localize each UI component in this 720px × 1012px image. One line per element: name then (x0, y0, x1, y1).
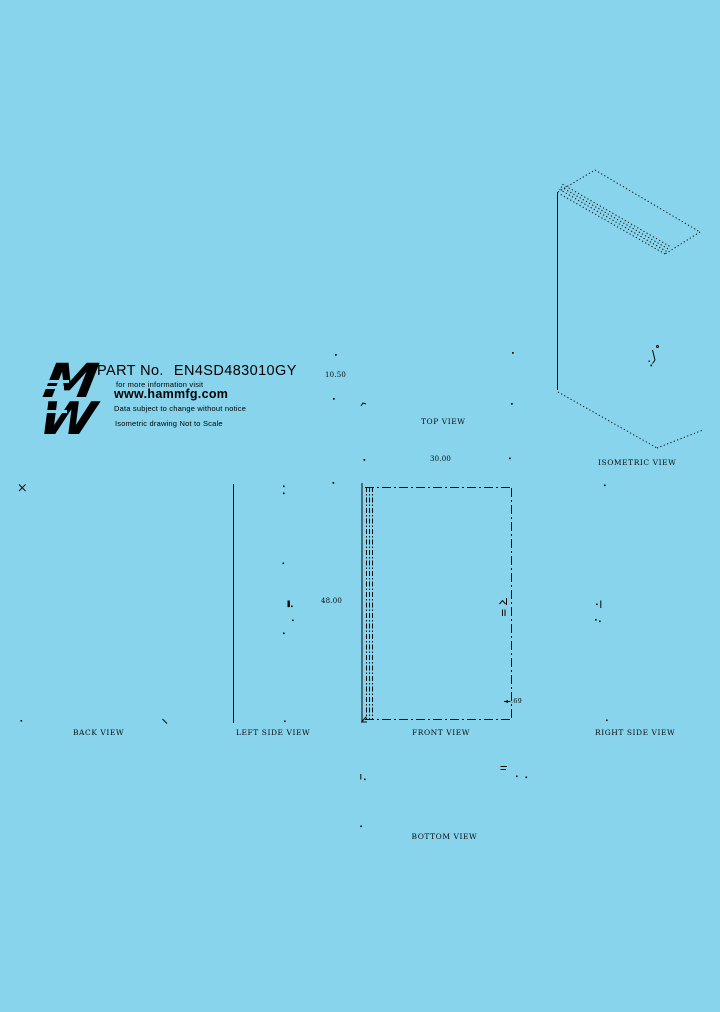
view-label-back: BACK VIEW (73, 729, 124, 737)
view-label-front: FRONT VIEW (412, 729, 470, 737)
view-label-top: TOP VIEW (421, 418, 466, 426)
dim-front-height: 48.00 (321, 598, 342, 605)
view-label-left-side: LEFT SIDE VIEW (236, 729, 310, 737)
scale-note-text: Isometric drawing Not to Scale (115, 419, 223, 428)
dim-front-door-offset: .69 (511, 698, 522, 705)
isometric-handle-mark (649, 346, 659, 367)
dim-top-depth: 10.50 (325, 372, 346, 379)
logo-stripe (40, 386, 64, 389)
website-link[interactable]: www.hammfg.com (114, 387, 228, 401)
hammond-logo-w: W (36, 396, 100, 441)
right-side-view-marks (595, 485, 608, 722)
logo-stripe (38, 410, 67, 413)
logo-stripe (42, 380, 69, 383)
front-view-outline (361, 483, 512, 722)
hammond-logo-icon: M W (36, 354, 100, 440)
disclaimer-text: Data subject to change without notice (114, 404, 246, 413)
view-label-right-side: RIGHT SIDE VIEW (595, 729, 675, 737)
bottom-view-marks (360, 767, 527, 828)
top-view-corner-tick (361, 403, 366, 406)
drawing-linework (0, 0, 720, 1012)
dim-top-width: 30.00 (430, 456, 451, 463)
part-number-label: PART No. (97, 363, 164, 379)
front-view-door-dim-arrow (504, 700, 511, 703)
title-block: M W PART No.EN4SD483010GY for more infor… (30, 352, 300, 444)
front-view-handle-marks (500, 598, 507, 616)
part-number-line: PART No.EN4SD483010GY (97, 363, 297, 379)
view-label-isometric: ISOMETRIC VIEW (598, 459, 676, 467)
isometric-view-outline (558, 170, 704, 448)
view-label-bottom: BOTTOM VIEW (412, 833, 478, 841)
part-number-value: EN4SD483010GY (174, 363, 297, 379)
back-view-marks (19, 485, 167, 724)
left-side-view-marks (234, 484, 294, 723)
drawing-sheet: M W PART No.EN4SD483010GY for more infor… (0, 0, 720, 1012)
